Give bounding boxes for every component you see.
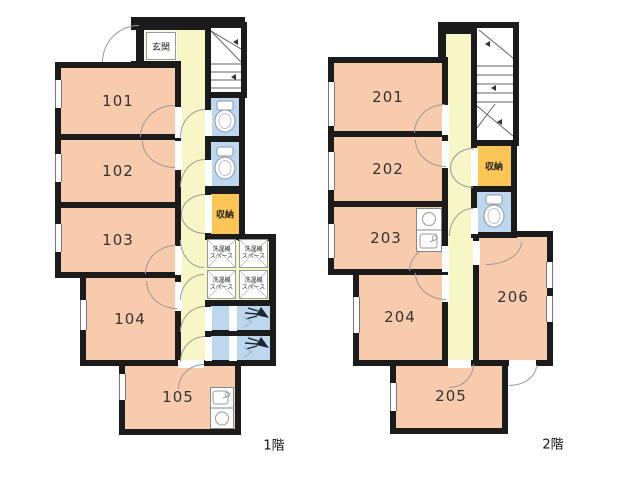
- window: [353, 297, 360, 333]
- door-gap: [473, 241, 480, 265]
- window: [328, 152, 335, 190]
- room-206-label: 206: [497, 288, 529, 306]
- room-205-label: 205: [435, 387, 467, 405]
- floor2-caption: 2階: [542, 434, 563, 453]
- storage-label: 収納: [485, 160, 503, 173]
- floor-plan-canvas: 洗濯機スペース 洗濯機スペース 洗濯機スペース 洗濯機スペース: [0, 0, 640, 480]
- window: [328, 224, 335, 258]
- toilet-icon: [481, 193, 507, 231]
- window: [546, 296, 553, 322]
- room-202-label: 202: [372, 160, 404, 178]
- stairs-icon: [477, 28, 513, 140]
- door-swing-arc: [509, 365, 537, 386]
- kitchenette-icon: [416, 208, 442, 252]
- window: [328, 82, 335, 126]
- window: [546, 262, 553, 288]
- room-201-label: 201: [372, 88, 404, 106]
- room-204-label: 204: [384, 308, 416, 326]
- window: [390, 383, 397, 411]
- floor-plan-2f: 201 202 203 204 205 206 収納 2階: [0, 0, 640, 480]
- stairs-2f: [471, 22, 519, 146]
- door-gap: [442, 246, 449, 272]
- room-203-label: 203: [370, 229, 402, 247]
